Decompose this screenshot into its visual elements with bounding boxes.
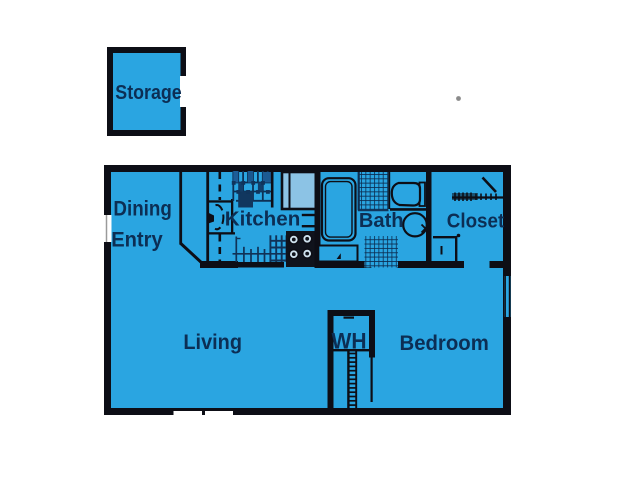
svg-text:Closet: Closet: [447, 211, 505, 233]
svg-text:Living: Living: [183, 331, 242, 354]
svg-text:WH: WH: [332, 328, 367, 353]
svg-text:Storage: Storage: [115, 82, 181, 104]
svg-text:Kitchen: Kitchen: [225, 207, 300, 230]
svg-text:Dining: Dining: [113, 198, 171, 221]
svg-text:Entry: Entry: [111, 229, 163, 252]
svg-text:Bedroom: Bedroom: [400, 332, 489, 355]
svg-text:Bath: Bath: [359, 210, 404, 232]
